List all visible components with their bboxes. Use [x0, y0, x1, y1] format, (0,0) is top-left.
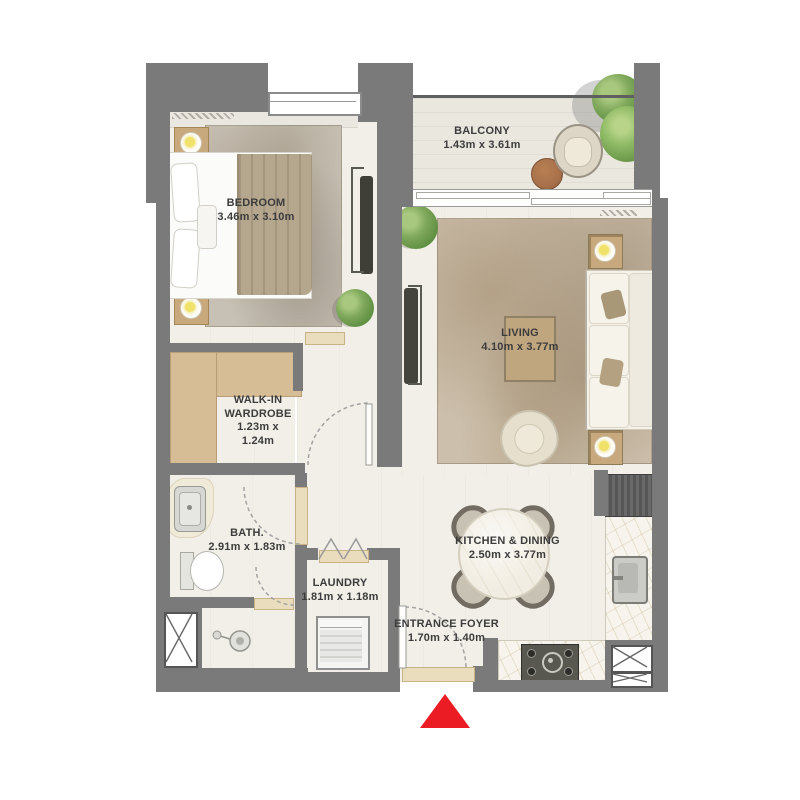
room-dimensions: 2.50m x 3.77m [430, 549, 585, 563]
door-leaf [366, 404, 372, 465]
room-name: ENTRANCE FOYER [374, 618, 519, 632]
room-label-wardrobe: WALK-IN WARDROBE 1.23m x 1.24m [198, 394, 318, 448]
shower-hose-icon [220, 636, 230, 639]
room-name: WALK-IN [198, 394, 318, 408]
room-dimensions: 1.70m x 1.40m [374, 632, 519, 646]
tv-bracket [352, 168, 364, 272]
room-name: WARDROBE [198, 408, 318, 422]
shaft-x-icon [166, 614, 192, 662]
room-dimensions: 1.43m x 3.61m [412, 139, 552, 153]
room-label-bedroom: BEDROOM 3.46m x 3.10m [186, 197, 326, 224]
room-dimensions: 1.23m x [198, 421, 318, 435]
entrance-marker [420, 694, 470, 728]
room-label-living: LIVING 4.10m x 3.77m [450, 327, 590, 354]
room-dimensions: 1.81m x 1.18m [272, 591, 408, 605]
room-label-foyer: ENTRANCE FOYER 1.70m x 1.40m [374, 618, 519, 645]
shower-head-icon [236, 637, 244, 645]
room-label-balcony: BALCONY 1.43m x 3.61m [412, 125, 552, 152]
tv-bracket [408, 286, 421, 384]
room-name: LIVING [450, 327, 590, 341]
shaft-x-icon [613, 674, 647, 682]
plan-linework [0, 0, 800, 800]
room-name: KITCHEN & DINING [430, 535, 585, 549]
room-dimensions: 3.46m x 3.10m [186, 211, 326, 225]
shaft-x-icon [613, 647, 647, 667]
room-name: LAUNDRY [272, 577, 408, 591]
shower-control-icon [213, 631, 221, 639]
room-label-laundry: LAUNDRY 1.81m x 1.18m [272, 577, 408, 604]
floor-plan: BEDROOM 3.46m x 3.10m BALCONY 1.43m x 3.… [0, 0, 800, 800]
room-name: BALCONY [412, 125, 552, 139]
room-name: BEDROOM [186, 197, 326, 211]
room-dimensions: 4.10m x 3.77m [450, 341, 590, 355]
room-label-bath: BATH. 2.91m x 1.83m [177, 527, 317, 554]
room-name: BATH. [177, 527, 317, 541]
room-label-kitchen: KITCHEN & DINING 2.50m x 3.77m [430, 535, 585, 562]
bifold-door-icon [319, 539, 367, 559]
room-dimensions: 1.24m [198, 435, 318, 449]
room-dimensions: 2.91m x 1.83m [177, 541, 317, 555]
